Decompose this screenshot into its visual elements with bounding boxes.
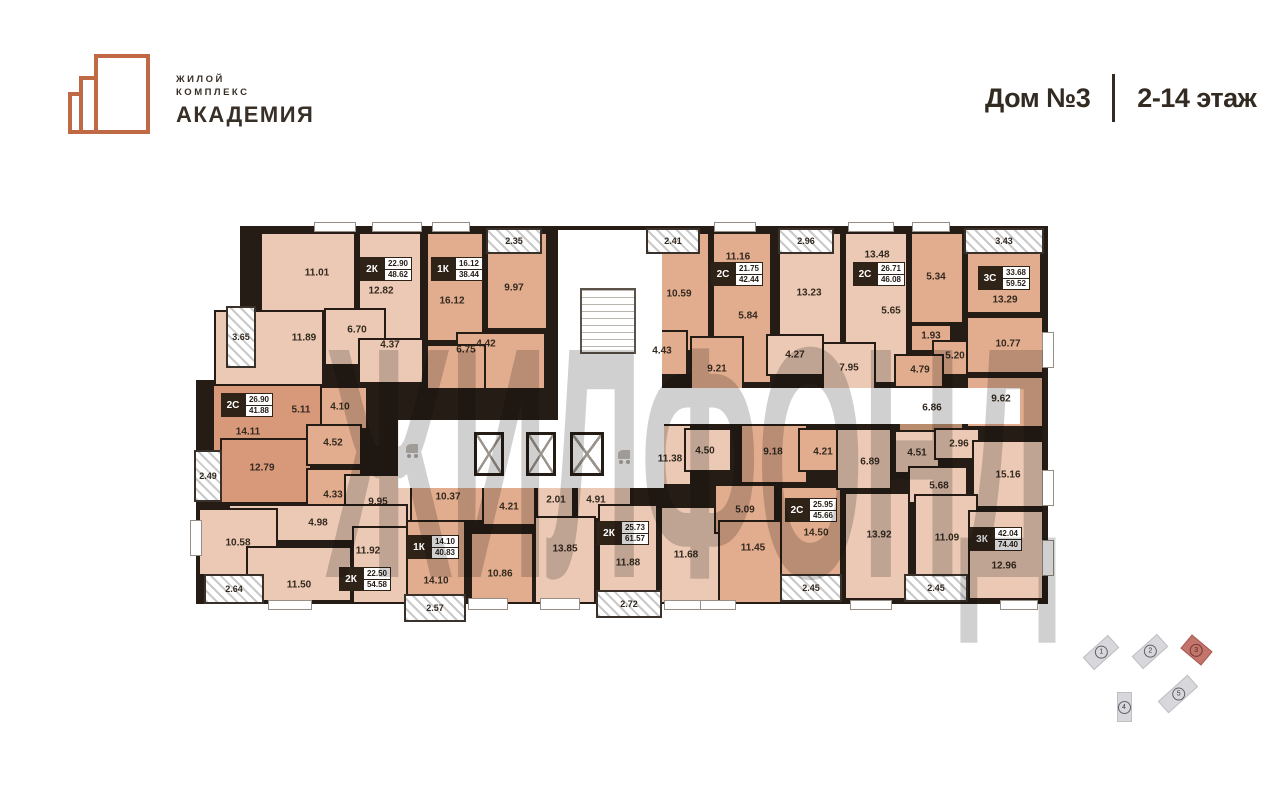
apartment-type: 2С <box>853 262 877 286</box>
apartment-type: 2К <box>339 567 363 591</box>
balcony-area-label: 2.96 <box>797 236 815 246</box>
window <box>700 600 736 610</box>
room-area-label: 4.51 <box>907 448 926 459</box>
apartment-badge[interactable]: 2С26.9041.88 <box>221 393 273 417</box>
balcony-area-label: 3.43 <box>995 236 1013 246</box>
room-area-label: 13.29 <box>992 295 1017 306</box>
living-area: 22.90 <box>384 257 412 270</box>
room-area-label: 11.68 <box>674 550 698 561</box>
balcony-area-label: 2.35 <box>505 236 523 246</box>
elevator-shaft-icon <box>526 432 556 476</box>
living-area: 26.90 <box>245 393 273 406</box>
balcony-area-label: 2.45 <box>927 583 945 593</box>
room-area-label: 10.58 <box>225 538 250 549</box>
balcony-area-label: 3.65 <box>232 332 250 342</box>
room-area-label: 11.45 <box>741 543 765 554</box>
elevator-shaft-icon <box>474 432 504 476</box>
total-area: 41.88 <box>245 406 273 418</box>
apartment-badge[interactable]: 2К25.7361.57 <box>597 521 649 545</box>
room-area-label: 4.33 <box>323 490 342 501</box>
room-area-label: 4.98 <box>308 518 327 529</box>
room-area-label: 11.16 <box>726 252 750 263</box>
room-area-label: 13.48 <box>864 250 889 261</box>
room-area-label: 5.65 <box>881 306 900 317</box>
window <box>714 222 756 232</box>
room-area-label: 9.62 <box>991 394 1010 405</box>
room-area-label: 12.96 <box>991 561 1016 572</box>
room-area-label: 11.09 <box>935 533 959 544</box>
balcony-area-label: 2.57 <box>426 603 444 613</box>
room-area-label: 4.10 <box>330 402 349 413</box>
room <box>534 516 596 604</box>
apartment-type: 2С <box>785 498 809 522</box>
room-area-label: 10.59 <box>666 289 691 300</box>
room-area-label: 13.92 <box>866 530 891 541</box>
total-area: 48.62 <box>384 270 412 282</box>
corridor-right <box>632 388 1020 424</box>
living-area: 22.50 <box>363 567 391 580</box>
room-area-label: 9.18 <box>763 447 782 458</box>
minimap-building-4[interactable]: 4 <box>1117 692 1132 722</box>
room-area-label: 1.93 <box>921 331 940 342</box>
room-area-label: 13.23 <box>796 288 821 299</box>
apartment-type: 1К <box>431 257 455 281</box>
floor-plan-page: ЖИЛОЙ КОМПЛЕКС АКАДЕМИЯ Дом №3 2-14 этаж… <box>0 0 1280 787</box>
window <box>268 600 312 610</box>
room-area-label: 13.85 <box>552 544 577 555</box>
room-area-label: 9.97 <box>504 283 523 294</box>
room-area-label: 5.68 <box>929 481 948 492</box>
apartment-badge[interactable]: 1К14.1040.83 <box>407 535 459 559</box>
room-area-label: 14.50 <box>803 528 828 539</box>
room <box>844 492 910 600</box>
apartment-badge[interactable]: 2С25.9545.66 <box>785 498 837 522</box>
room-area-label: 11.38 <box>658 454 682 465</box>
minimap-building-number: 2 <box>1144 645 1157 658</box>
living-area: 14.10 <box>431 535 459 548</box>
apartment-badge[interactable]: 2К22.5054.58 <box>339 567 391 591</box>
apartment-type: 2К <box>360 257 384 281</box>
window <box>1042 540 1054 576</box>
living-area: 42.04 <box>994 527 1022 540</box>
room-area-label: 4.52 <box>323 438 342 449</box>
room-area-label: 11.92 <box>356 546 380 557</box>
staircase <box>580 288 636 354</box>
room-area-label: 6.75 <box>456 345 475 356</box>
room-area-label: 5.09 <box>735 505 754 516</box>
total-area: 54.58 <box>363 580 391 592</box>
room-area-label: 15.16 <box>995 470 1020 481</box>
room-area-label: 12.79 <box>249 463 274 474</box>
balcony-area-label: 2.64 <box>225 584 243 594</box>
stroller-icon <box>618 450 630 459</box>
room-area-label: 10.86 <box>487 569 512 580</box>
elevator-shaft-icon <box>570 432 604 476</box>
room-area-label: 6.86 <box>922 403 941 414</box>
room-area-label: 5.84 <box>738 311 757 322</box>
room-area-label: 11.50 <box>287 580 311 591</box>
window <box>1042 332 1054 368</box>
living-area: 25.95 <box>809 498 837 511</box>
window <box>372 222 422 232</box>
apartment-badge[interactable]: 1К16.1238.44 <box>431 257 483 281</box>
balcony-area-label: 2.45 <box>802 583 820 593</box>
room-area-label: 10.77 <box>995 339 1020 350</box>
total-area: 61.57 <box>621 534 649 546</box>
floor-plan: 2.352.412.963.433.652.492.642.572.722.45… <box>0 0 1280 787</box>
apartment-type: 2К <box>597 521 621 545</box>
window <box>912 222 950 232</box>
room <box>968 510 1044 600</box>
window <box>1042 470 1054 506</box>
living-area: 16.12 <box>455 257 483 270</box>
total-area: 59.52 <box>1002 279 1030 291</box>
total-area: 42.44 <box>735 275 763 287</box>
room-area-label: 2.96 <box>949 439 968 450</box>
room-area-label: 4.21 <box>813 447 832 458</box>
room-area-label: 4.42 <box>476 339 495 350</box>
window <box>432 222 470 232</box>
apartment-type: 2С <box>221 393 245 417</box>
total-area: 40.83 <box>431 548 459 560</box>
room-area-label: 5.11 <box>292 405 311 416</box>
room-area-label: 7.95 <box>839 363 858 374</box>
stroller-icon <box>406 444 418 453</box>
living-area: 33.68 <box>1002 266 1030 279</box>
room-area-label: 14.11 <box>236 427 260 438</box>
room-area-label: 5.34 <box>926 272 945 283</box>
apartment-badge[interactable]: 3С33.6859.52 <box>978 266 1030 290</box>
room-area-label: 9.95 <box>368 497 387 508</box>
window <box>314 222 356 232</box>
minimap-building-number: 3 <box>1190 644 1203 657</box>
apartment-badge[interactable]: 2С26.7146.08 <box>853 262 905 286</box>
room-area-label: 4.37 <box>380 340 399 351</box>
total-area: 46.08 <box>877 275 905 287</box>
window <box>468 598 508 610</box>
room-area-label: 10.37 <box>435 492 460 503</box>
apartment-type: 3К <box>970 527 994 551</box>
total-area: 74.40 <box>994 540 1022 552</box>
room-area-label: 16.12 <box>439 296 464 307</box>
balcony-area-label: 2.72 <box>620 599 638 609</box>
room-area-label: 11.88 <box>616 558 640 569</box>
total-area: 45.66 <box>809 511 837 523</box>
living-area: 21.75 <box>735 262 763 275</box>
room-area-label: 11.89 <box>292 333 316 344</box>
window <box>1000 600 1038 610</box>
room-area-label: 12.82 <box>368 286 393 297</box>
room <box>598 504 658 604</box>
apartment-badge[interactable]: 3К42.0474.40 <box>970 527 1022 551</box>
window <box>850 600 892 610</box>
room-area-label: 6.70 <box>347 325 366 336</box>
room-area-label: 4.21 <box>499 502 518 513</box>
room <box>426 232 484 342</box>
room-area-label: 14.10 <box>423 576 448 587</box>
apartment-type: 3С <box>978 266 1002 290</box>
room-area-label: 4.50 <box>695 446 714 457</box>
window <box>540 598 580 610</box>
room-area-label: 2.01 <box>546 495 565 506</box>
room-area-label: 4.43 <box>652 346 671 357</box>
room-area-label: 4.27 <box>785 350 804 361</box>
balcony-area-label: 2.49 <box>199 471 217 481</box>
room-area-label: 6.89 <box>860 457 879 468</box>
apartment-type: 1К <box>407 535 431 559</box>
minimap-building-number: 1 <box>1095 646 1108 659</box>
apartment-badge[interactable]: 2С21.7542.44 <box>711 262 763 286</box>
apartment-type: 2С <box>711 262 735 286</box>
room <box>718 520 786 604</box>
room-area-label: 4.91 <box>586 495 605 506</box>
room <box>406 520 466 604</box>
living-area: 26.71 <box>877 262 905 275</box>
minimap-building-number: 4 <box>1118 701 1131 714</box>
room-area-label: 9.21 <box>707 364 726 375</box>
room-area-label: 4.79 <box>910 365 929 376</box>
room-area-label: 5.20 <box>945 351 964 362</box>
room-area-label: 11.01 <box>305 268 329 279</box>
balcony-area-label: 2.41 <box>664 236 682 246</box>
window <box>190 520 202 556</box>
apartment-badge[interactable]: 2К22.9048.62 <box>360 257 412 281</box>
window <box>848 222 894 232</box>
minimap-building-number: 5 <box>1172 688 1185 701</box>
living-area: 25.73 <box>621 521 649 534</box>
total-area: 38.44 <box>455 270 483 282</box>
